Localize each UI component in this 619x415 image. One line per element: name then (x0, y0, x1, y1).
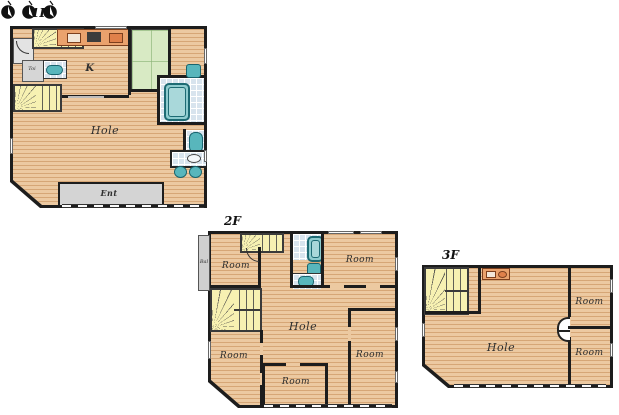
window (204, 48, 207, 64)
wall (325, 363, 328, 405)
floorplan-2f: Room Room Hole Room Room Room (208, 231, 398, 408)
floor-label-3f: 3F (442, 248, 459, 262)
kitchen-hob (109, 33, 123, 43)
room-label: Room (568, 298, 611, 307)
room-label: Room (334, 256, 386, 265)
washbasin-small (186, 64, 201, 78)
door-opening (348, 327, 351, 341)
compass-icon (0, 0, 16, 20)
wall (321, 234, 324, 288)
window (10, 138, 13, 154)
window (204, 150, 207, 162)
wall (348, 308, 395, 311)
kitchenette-sink (486, 271, 496, 278)
entrance-label: Ent (58, 189, 160, 197)
room-label: Room (568, 349, 611, 358)
window-band (454, 384, 606, 388)
floor-label-1f: 1F (31, 6, 48, 20)
floorplan-page: { "colors": { "wood": "#ecc9a1", "wall":… (0, 0, 619, 415)
bathtub (164, 83, 190, 121)
wall (478, 268, 481, 311)
stair-winders (426, 269, 445, 313)
door-opening (366, 285, 380, 288)
kitchen-sink (67, 33, 81, 43)
stairs-main-2f (210, 288, 262, 332)
kitchen-counter (57, 29, 132, 46)
door-opening (260, 343, 263, 355)
window (395, 257, 398, 271)
window-band (264, 404, 392, 408)
kitchen-label: K (72, 64, 108, 74)
window (95, 26, 127, 29)
basin-left (174, 166, 187, 178)
floorplan-1f: K Toi Hole Ent (10, 26, 207, 208)
wall (262, 363, 265, 405)
double-door (557, 317, 570, 342)
balcony-2f: Bal (198, 235, 210, 291)
window-band (62, 204, 204, 208)
wall (157, 78, 160, 125)
window (395, 371, 398, 383)
room-label: Room (214, 262, 258, 271)
window (610, 343, 613, 357)
room-label: Room (344, 351, 396, 360)
kitchen-stove (87, 32, 101, 42)
room-label: Room (268, 378, 324, 387)
hole-label-3f: Hole (476, 342, 526, 353)
stair-winders (15, 86, 36, 110)
toilet-label: Toi (23, 67, 41, 72)
floorplan-3f: Hole Room Room (422, 265, 613, 388)
balcony-label: Bal (199, 260, 209, 265)
toilet2-bowl (46, 65, 63, 75)
wall (425, 311, 481, 314)
hole-label-2f: Hole (278, 321, 328, 332)
window (395, 327, 398, 341)
wall (568, 326, 610, 329)
stair-winders (34, 30, 56, 47)
sliding-door (68, 96, 104, 98)
basin-right (189, 166, 202, 178)
window (208, 341, 211, 359)
kitchenette-counter (482, 268, 510, 280)
door-opening (286, 363, 300, 366)
stairs-main-1f (13, 84, 62, 112)
window (328, 231, 354, 234)
stairs-3f (424, 267, 469, 315)
door-opening (330, 285, 344, 288)
hole-label-1f: Hole (80, 125, 130, 136)
stair-winders (212, 290, 234, 330)
room-label: Room (212, 352, 256, 361)
kitchenette-hob (498, 271, 507, 278)
window (360, 231, 382, 234)
vanity-sink (187, 154, 201, 163)
wall (157, 122, 204, 125)
floor-label-2f: 2F (224, 214, 241, 228)
window (610, 279, 613, 293)
window (422, 323, 425, 337)
